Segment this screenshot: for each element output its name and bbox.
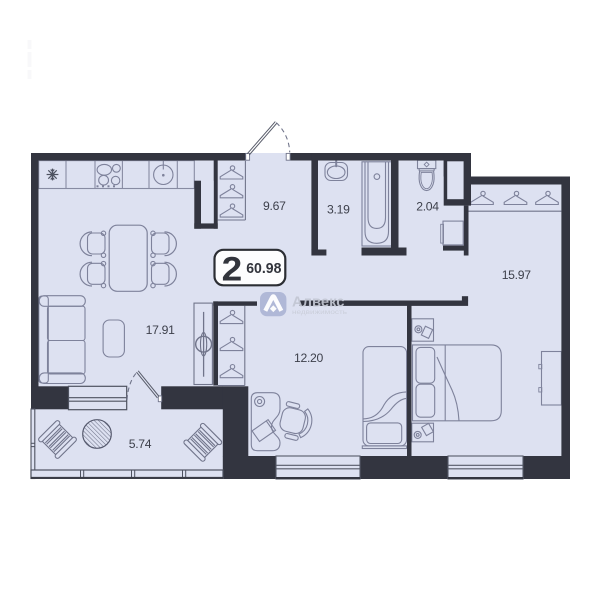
svg-text:2: 2 — [222, 250, 243, 288]
svg-text:9.67: 9.67 — [263, 199, 286, 213]
svg-text:15.97: 15.97 — [502, 268, 532, 282]
svg-text:17.91: 17.91 — [146, 323, 176, 337]
svg-text:недвижимость: недвижимость — [292, 309, 348, 316]
svg-text:60.98: 60.98 — [246, 261, 281, 277]
svg-text:2.04: 2.04 — [416, 199, 439, 213]
svg-text:12.20: 12.20 — [294, 351, 324, 365]
svg-text:3.19: 3.19 — [327, 202, 350, 216]
svg-text:5.74: 5.74 — [129, 437, 152, 451]
